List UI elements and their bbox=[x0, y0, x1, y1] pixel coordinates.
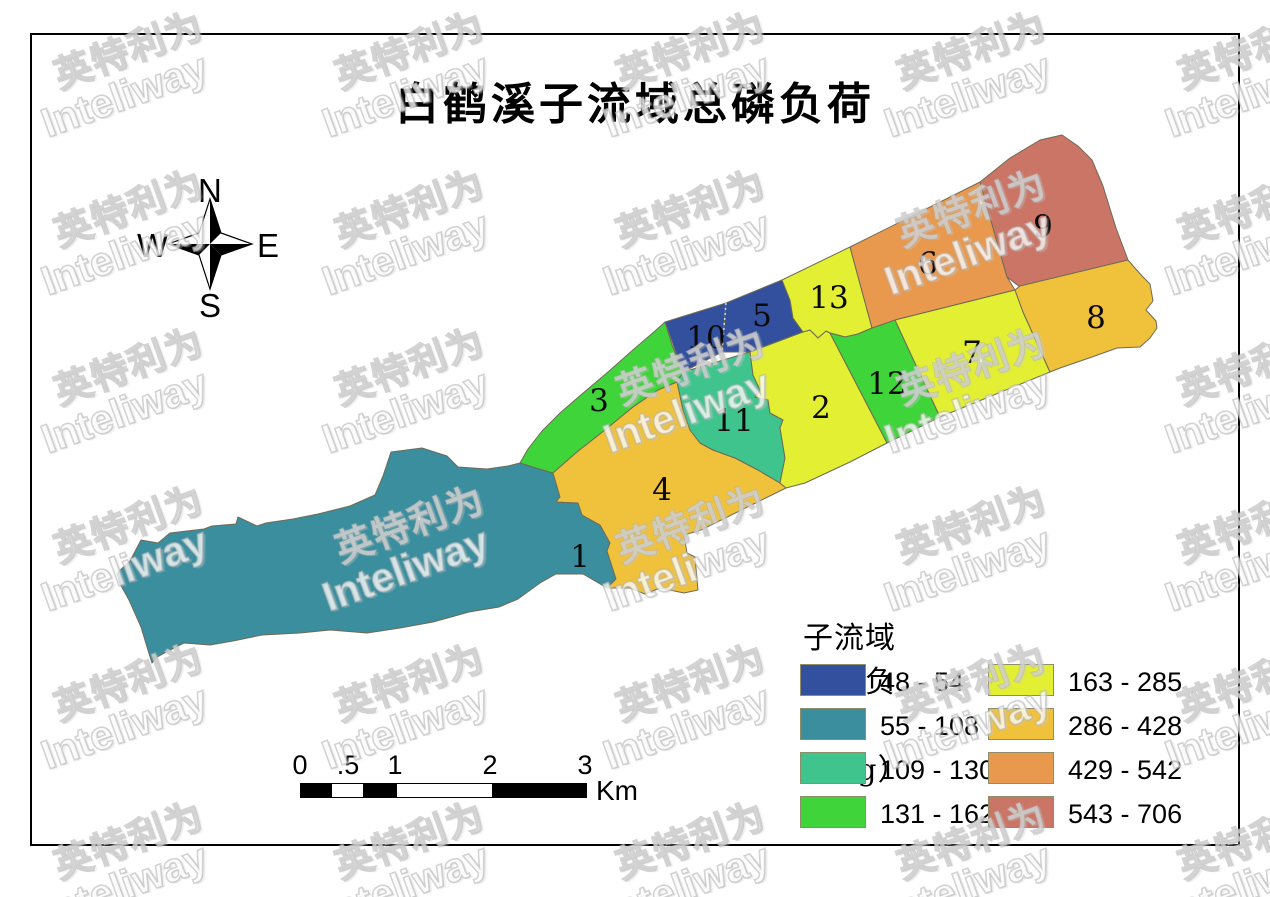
region-label-2: 2 bbox=[811, 390, 831, 426]
legend-swatch-7 bbox=[988, 796, 1054, 828]
scale-bar-tick-3: 2 bbox=[482, 750, 497, 781]
legend-range-1: 55 - 108 bbox=[880, 711, 979, 742]
legend-range-4: 163 - 285 bbox=[1068, 667, 1182, 698]
region-1 bbox=[117, 448, 616, 663]
legend-range-7: 543 - 706 bbox=[1068, 799, 1182, 830]
region-label-1: 1 bbox=[570, 539, 590, 575]
legend-range-3: 131 - 162 bbox=[880, 799, 994, 830]
region-label-13: 13 bbox=[809, 280, 848, 316]
scale-bar-tick-2: 1 bbox=[387, 750, 402, 781]
region-label-4: 4 bbox=[652, 472, 672, 508]
scale-bar-tick-0: 0 bbox=[292, 750, 307, 781]
scale-bar-segment-2 bbox=[363, 784, 397, 797]
region-label-3: 3 bbox=[589, 383, 609, 419]
region-label-10: 10 bbox=[686, 320, 725, 356]
region-label-11: 11 bbox=[714, 403, 753, 439]
legend-range-5: 286 - 428 bbox=[1068, 711, 1182, 742]
scale-bar-unit: Km bbox=[596, 775, 638, 807]
region-label-12: 12 bbox=[867, 366, 906, 402]
region-label-9: 9 bbox=[1033, 209, 1053, 245]
legend-swatch-2 bbox=[800, 752, 866, 784]
legend-swatch-6 bbox=[988, 752, 1054, 784]
legend-swatch-5 bbox=[988, 708, 1054, 740]
scale-bar-segment-4 bbox=[492, 784, 586, 797]
legend-swatch-3 bbox=[800, 796, 866, 828]
region-label-8: 8 bbox=[1086, 300, 1106, 336]
scale-bar-segment-3 bbox=[397, 784, 492, 797]
legend-swatch-1 bbox=[800, 708, 866, 740]
map-canvas: 白鹤溪子流域总磷负荷 N W E S 13411105213126798 0.5… bbox=[0, 0, 1270, 897]
scale-bar-tick-4: 3 bbox=[577, 750, 592, 781]
scale-bar-segment-1 bbox=[332, 784, 363, 797]
legend-range-6: 429 - 542 bbox=[1068, 755, 1182, 786]
scale-bar-strip bbox=[300, 783, 587, 798]
scale-bar-tick-1: .5 bbox=[337, 750, 360, 781]
region-label-5: 5 bbox=[752, 298, 772, 334]
region-label-7: 7 bbox=[962, 335, 982, 371]
scale-bar-segment-0 bbox=[301, 784, 332, 797]
legend-swatch-4 bbox=[988, 664, 1054, 696]
region-label-6: 6 bbox=[918, 246, 938, 282]
legend-swatch-0 bbox=[800, 664, 866, 696]
legend-range-0: 48 - 54 bbox=[880, 667, 964, 698]
legend-range-2: 109 - 130 bbox=[880, 755, 994, 786]
